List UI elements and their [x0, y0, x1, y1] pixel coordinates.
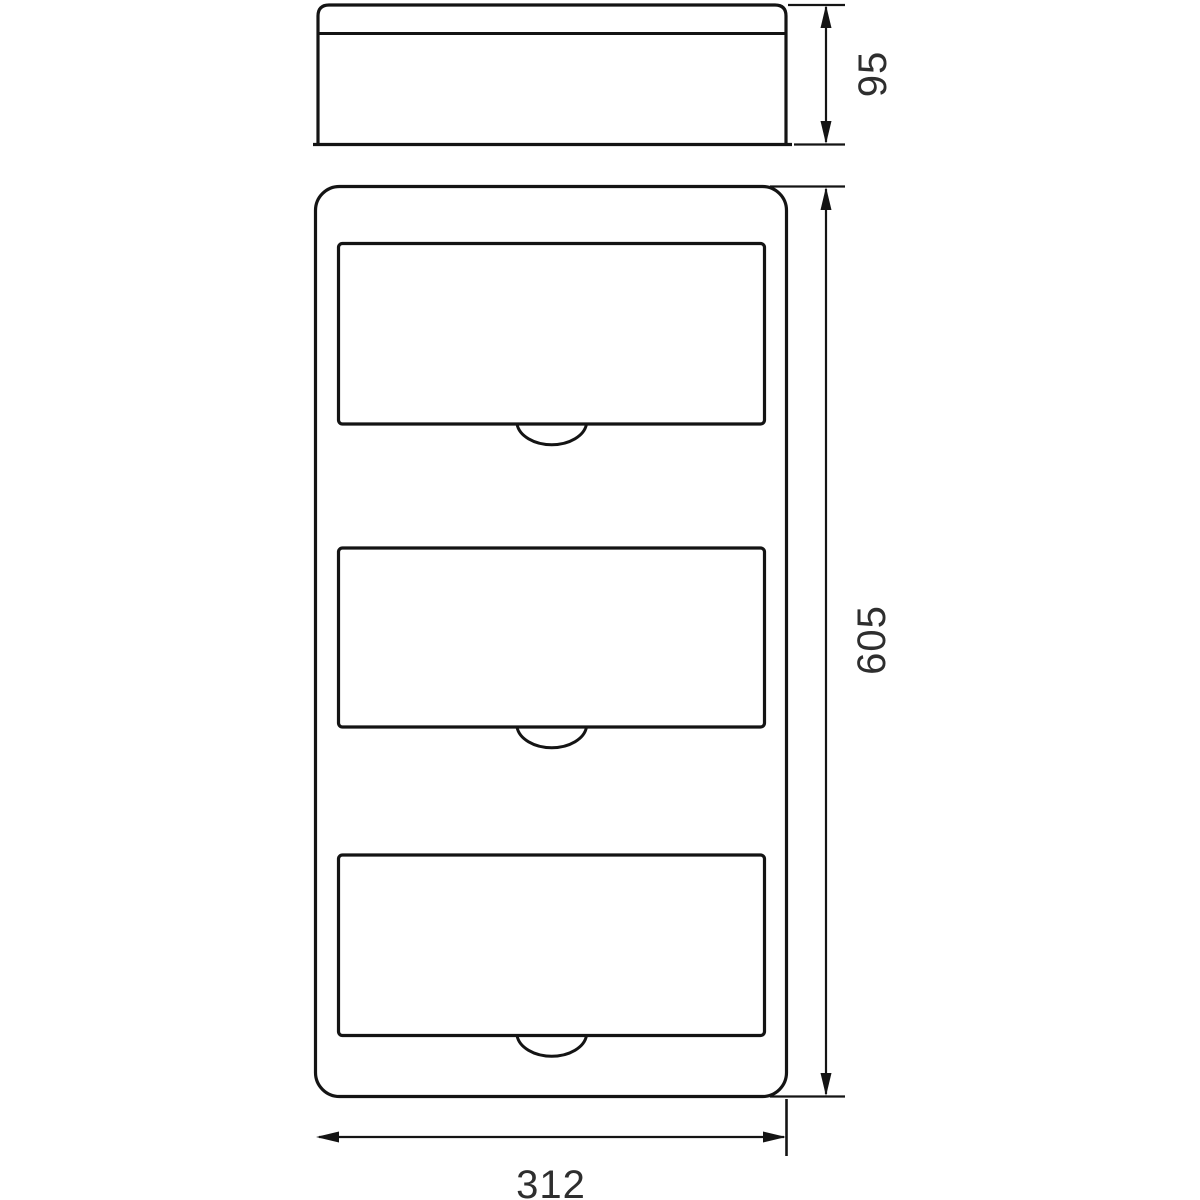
technical-drawing-canvas: 95 605 312: [0, 0, 1200, 1200]
front-view: [316, 187, 787, 1097]
depth-dimension: 95: [788, 5, 895, 145]
height-dimension: 605: [770, 187, 894, 1097]
arrow-up-icon: [821, 5, 832, 28]
module-window-2: [339, 548, 765, 727]
side-view: [313, 5, 792, 145]
arrow-left-icon: [316, 1132, 339, 1143]
height-dimension-label: 605: [850, 605, 894, 675]
arrow-down-icon: [821, 1073, 832, 1096]
side-view-outline: [318, 5, 786, 144]
arrow-right-icon: [763, 1132, 786, 1143]
module-window-1: [339, 244, 765, 425]
drawing-page: 95 605 312: [0, 0, 1200, 1200]
width-dimension-label: 312: [516, 1163, 586, 1200]
depth-dimension-label: 95: [851, 51, 895, 98]
width-dimension: 312: [316, 1099, 787, 1200]
module-window-3: [339, 855, 765, 1036]
arrow-down-icon: [821, 121, 832, 144]
arrow-up-icon: [821, 187, 832, 210]
